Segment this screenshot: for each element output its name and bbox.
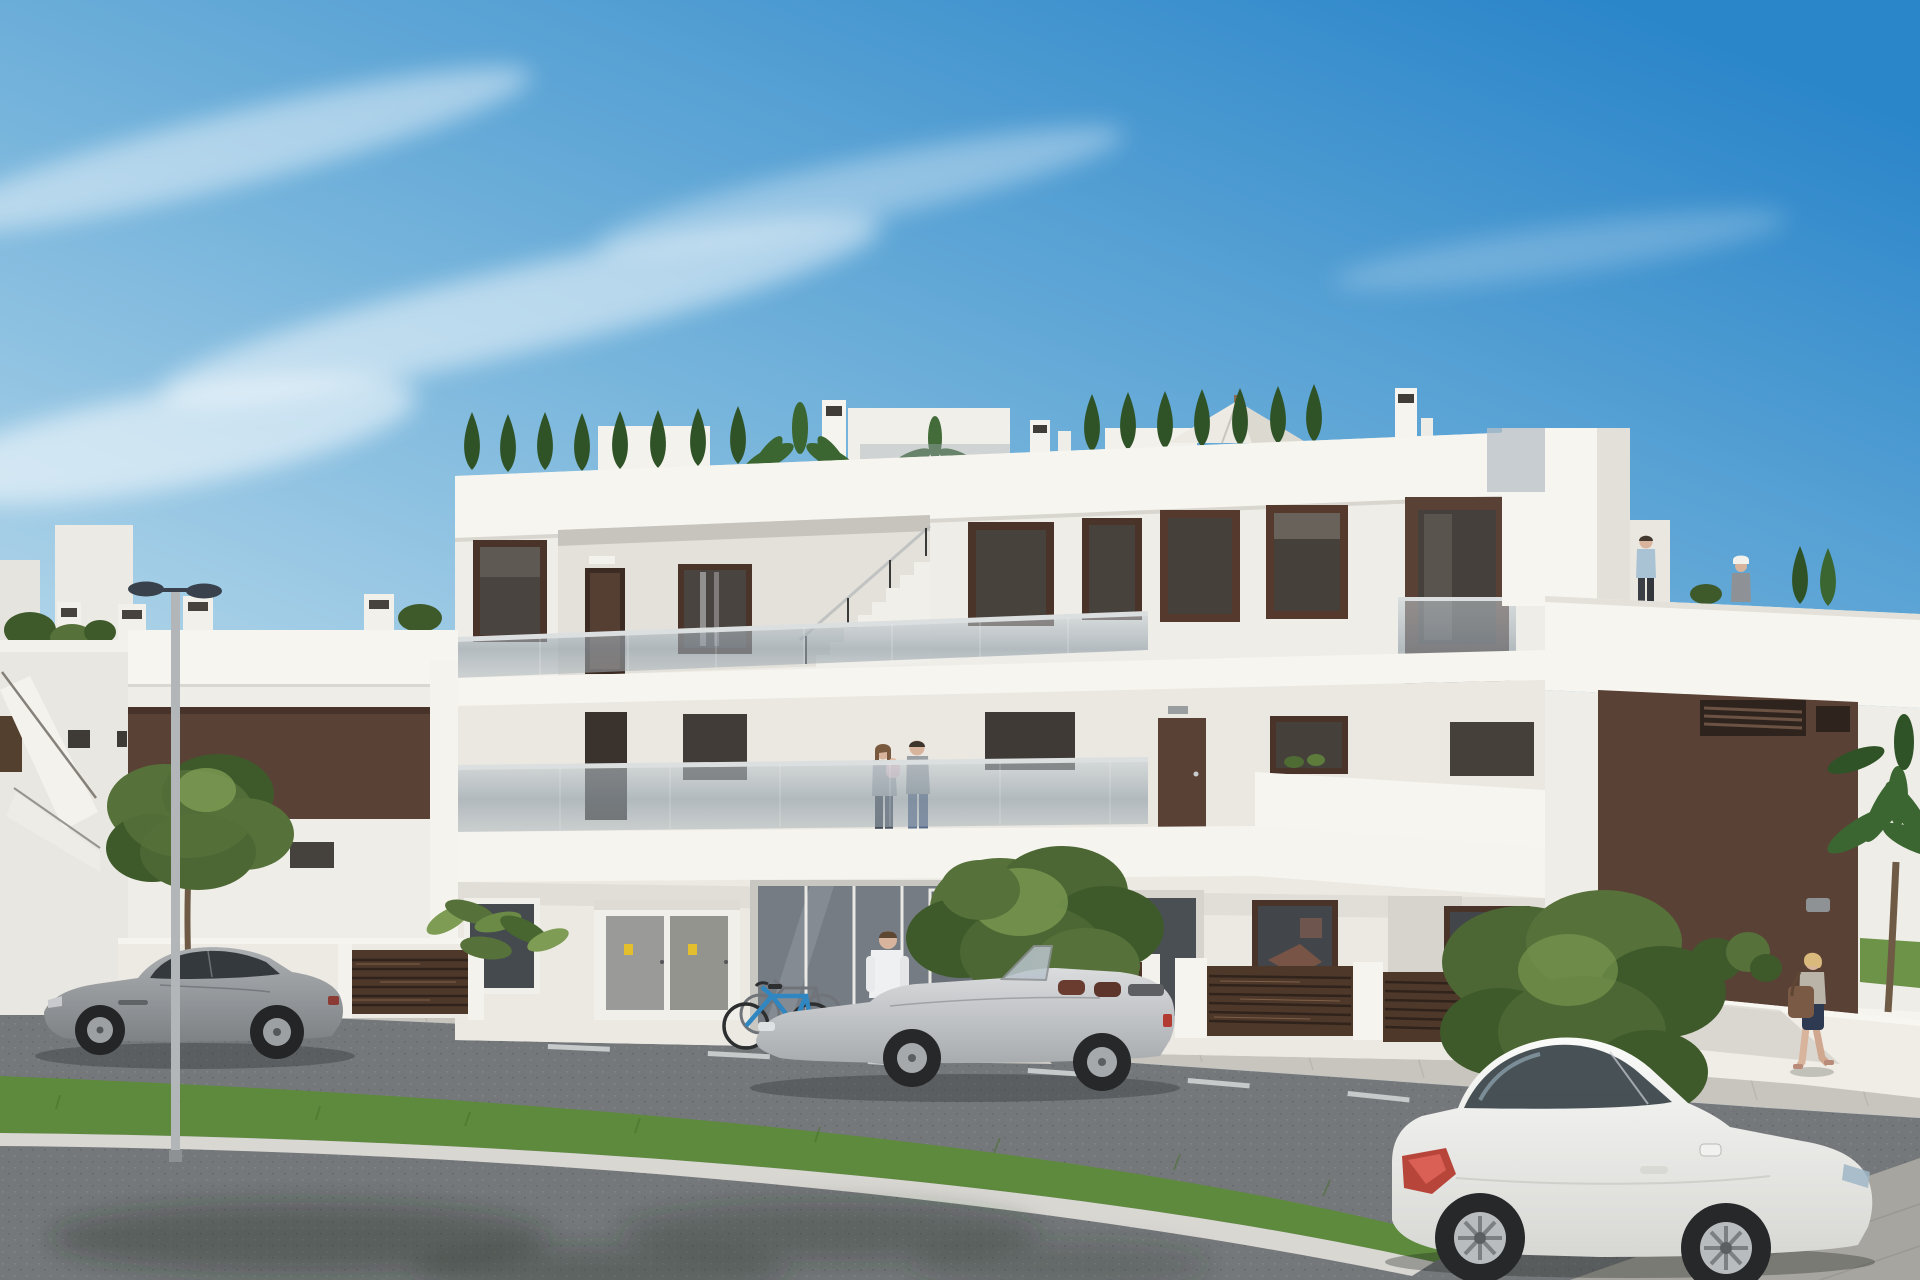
front-wheel [883, 1029, 941, 1087]
ff-window-4 [1450, 722, 1534, 776]
bg-parapet-cap [0, 640, 130, 652]
headlight [758, 1022, 775, 1031]
ff-door-brown [1158, 706, 1206, 830]
mirror [1700, 1144, 1721, 1156]
warning-sticker-1 [624, 944, 633, 955]
ff-balcony-glass [455, 760, 1148, 832]
utility-cabinets [594, 900, 740, 1020]
wall-lamp [1806, 898, 1830, 912]
window-brown-E [1266, 505, 1348, 619]
woman-roof-terrace [1731, 556, 1751, 603]
annex-roof-glass-corner [1487, 428, 1545, 492]
lamp-head-left [128, 582, 164, 597]
taillight [1163, 1014, 1172, 1027]
window-brown-A [473, 540, 547, 642]
lamp-base [169, 1150, 182, 1162]
lamp-pole [171, 592, 180, 1158]
ff-window-3 [1270, 716, 1348, 774]
rear-wheel [1073, 1033, 1131, 1091]
bg-window-2 [117, 731, 127, 747]
window-brown-B [968, 522, 1054, 626]
bike-saddle [768, 984, 782, 989]
white-visor [1733, 556, 1749, 565]
front-wheel [75, 1005, 125, 1055]
window-brown-C [1082, 518, 1142, 620]
wing-window-2 [290, 842, 334, 868]
bg-window-1 [68, 730, 90, 748]
window-brown-D [1160, 510, 1240, 622]
warning-sticker-2 [688, 944, 697, 955]
wing-roof-plant [398, 604, 442, 632]
taillight [328, 996, 339, 1005]
slat-fence-left [338, 944, 484, 1020]
rear-wheel [1435, 1193, 1525, 1280]
side-vent [118, 1000, 148, 1005]
rear-wheel [250, 1005, 304, 1059]
render-image [0, 0, 1920, 1280]
lamp-head-right [186, 584, 222, 599]
door-handle [1640, 1166, 1668, 1174]
